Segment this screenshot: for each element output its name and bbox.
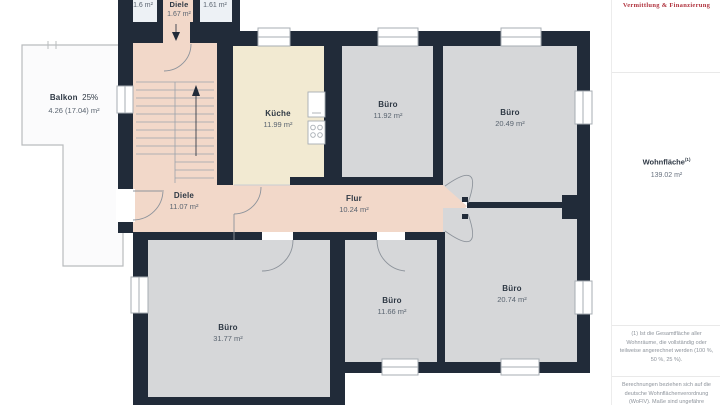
room-label-balkon: Balkon 25% 4.26 (17.04) m² [48, 88, 99, 115]
room-label-buero-ne: Büro 20.49 m² [495, 109, 525, 128]
window-buero-nw-north [378, 28, 418, 46]
room-label-diele: Diele 11.07 m² [169, 192, 198, 211]
window-kitchen-north [258, 28, 290, 46]
agency-logo-tagline: Vermittlung & Finanzierung [612, 2, 720, 9]
room-label-buero-sm: Büro 11.66 m² [377, 297, 406, 316]
balcony-door-gap [116, 189, 135, 222]
living-area-value: 139.02 m² [612, 172, 720, 179]
sidebar-divider [612, 72, 720, 73]
room-label-raum-or: 1.61 m² [203, 2, 227, 9]
room-label-buero-sw: Büro 31.77 m² [213, 324, 243, 343]
window-buero-se-south [501, 359, 539, 375]
room-label-flur: Flur 10.24 m² [339, 195, 369, 214]
room-buero-sw-fill [148, 240, 330, 397]
room-label-kueche: Küche 11.99 m² [263, 110, 292, 129]
sidebar-divider [612, 325, 720, 326]
room-label-buero-se: Büro 20.74 m² [497, 285, 527, 304]
window-buero-ne-north [501, 28, 541, 46]
window-buero-ne-east [575, 91, 592, 124]
window-buero-se-east [575, 281, 592, 314]
living-area-label: Wohnfläche(1) [612, 157, 720, 167]
room-label-buero-nw: Büro 11.92 m² [373, 101, 402, 120]
floorplan-screenshot: Balkon 25% 4.26 (17.04) m² 1.6 m² Diele … [0, 0, 720, 405]
window-buero-sw-west [131, 277, 148, 313]
footnote-area-definition: (1) Ist die Gesamtfläche aller Wohnräume… [619, 330, 714, 364]
window-buero-sm-south [382, 359, 418, 375]
balcony-outline [22, 41, 123, 266]
room-label-raum-ol: 1.6 m² [133, 2, 153, 9]
window-diele-west [117, 86, 133, 113]
info-sidebar: Vermittlung & Finanzierung Wohnfläche(1)… [611, 0, 720, 405]
footnote-calculation: Berechnungen beziehen sich auf die deuts… [619, 381, 714, 405]
floorplan-drawing [0, 0, 612, 405]
room-label-diele-top: Diele 1.67 m² [167, 1, 191, 18]
sidebar-divider [612, 376, 720, 377]
kitchen-stove [308, 121, 325, 144]
